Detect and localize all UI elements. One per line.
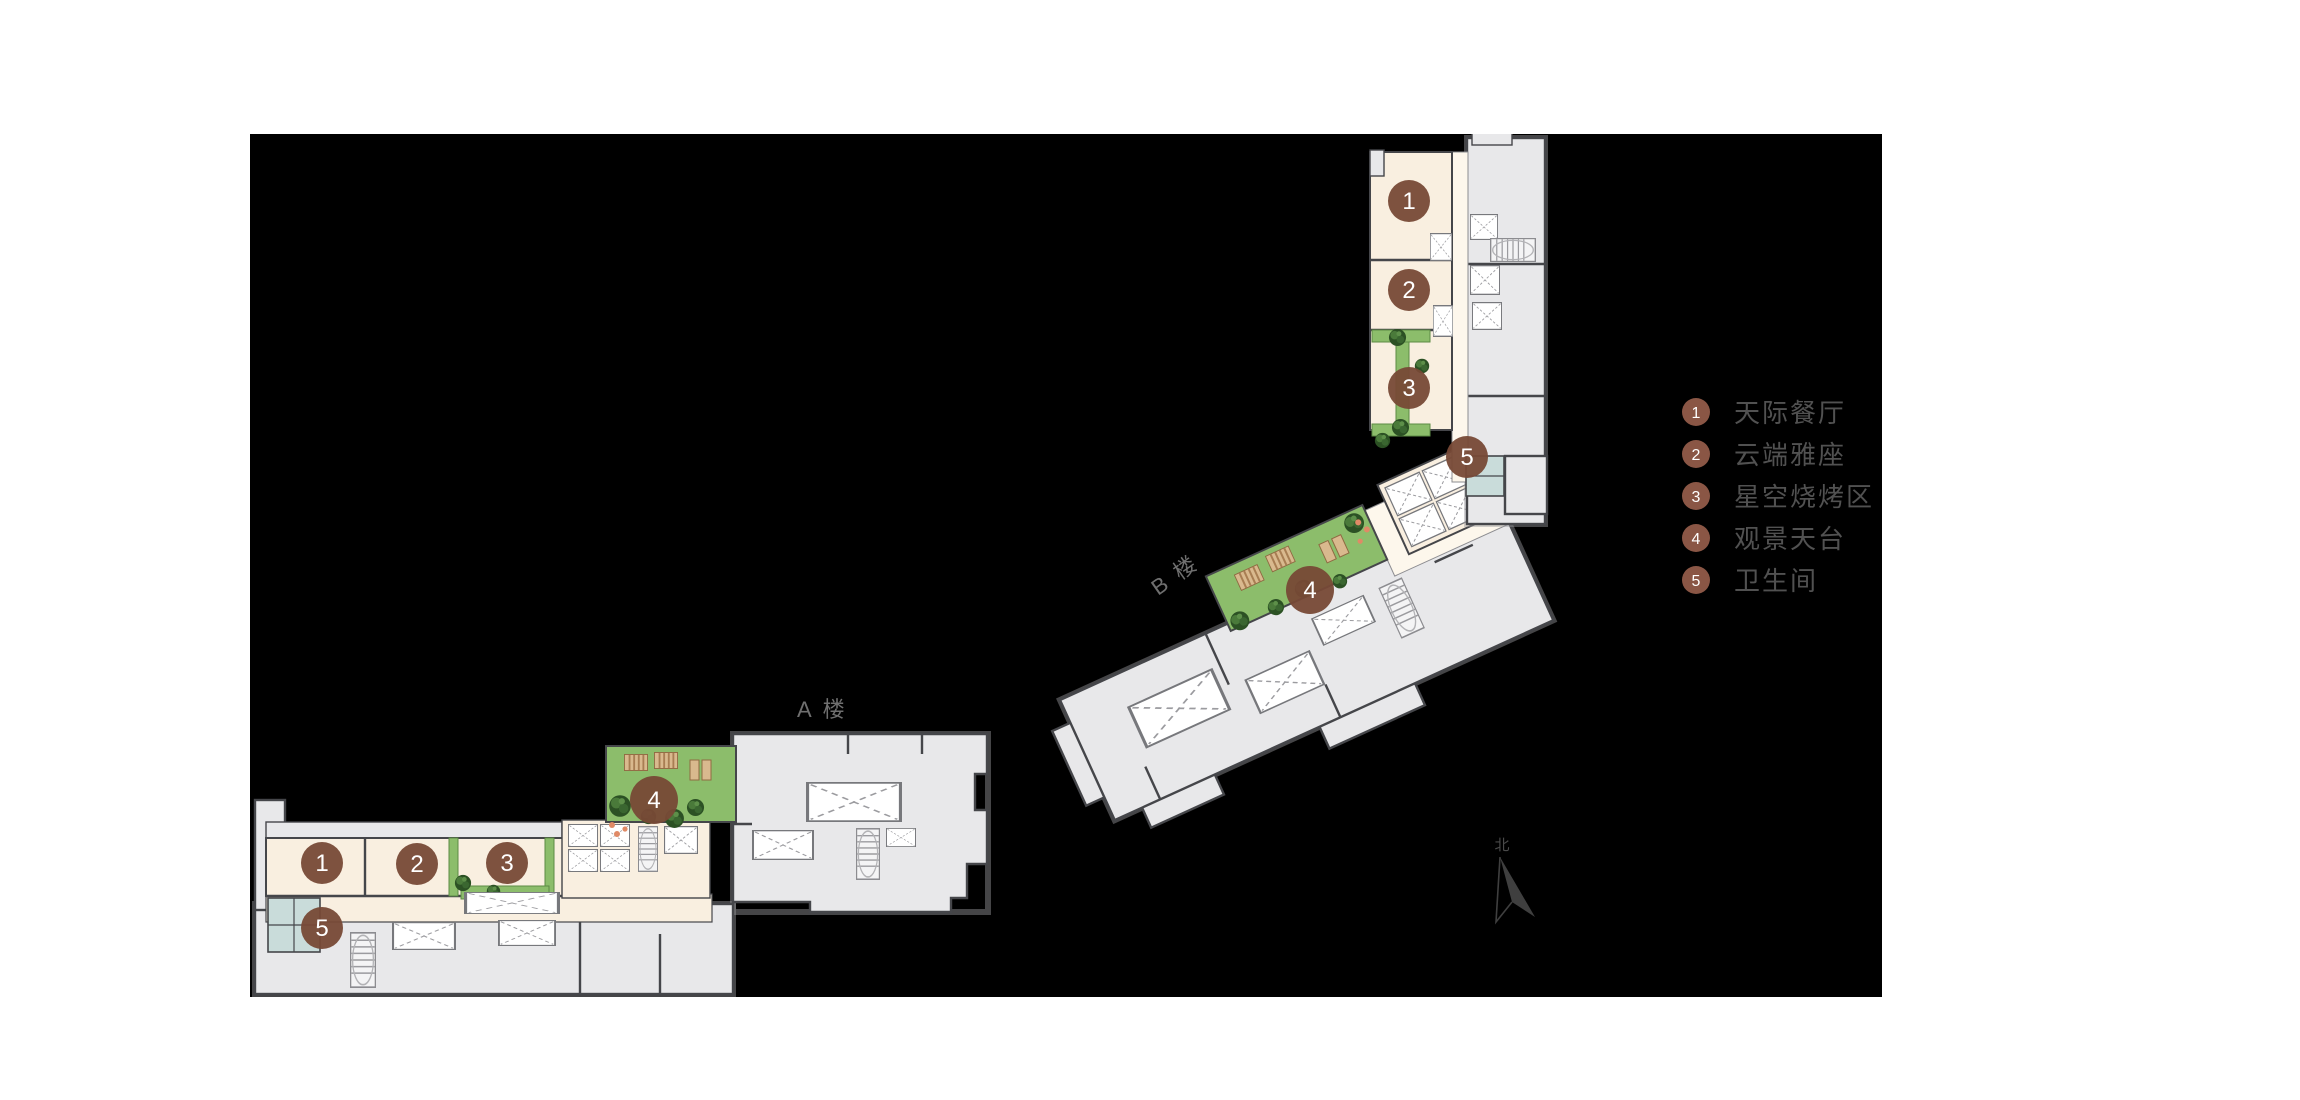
wing-b-notch [1370, 150, 1384, 176]
x-room [1470, 266, 1499, 295]
svg-text:5: 5 [1692, 573, 1701, 590]
legend-label-1: 天际餐厅 [1734, 398, 1846, 428]
elevator-x [665, 827, 698, 854]
x-room [1472, 303, 1501, 330]
tree-icon [1389, 329, 1406, 346]
lounge-chair [690, 760, 699, 780]
x-room [886, 828, 915, 846]
tree-icon [1375, 433, 1390, 448]
building-a [255, 734, 988, 994]
legend-item-3: 3 星空烧烤区 [1682, 482, 1874, 512]
x-room [393, 923, 455, 950]
x-room [499, 921, 555, 946]
tree-icon [455, 875, 471, 891]
stairs-icon [857, 829, 880, 879]
legend-label-3: 星空烧烤区 [1734, 482, 1874, 512]
svg-text:2: 2 [1692, 447, 1701, 464]
elevator-x [600, 849, 629, 871]
marker-a4: 4 [630, 776, 678, 824]
north-arrow-icon [1500, 857, 1535, 917]
stairs-icon [639, 827, 658, 872]
legend-label-2: 云端雅座 [1734, 440, 1846, 470]
svg-text:2: 2 [1402, 277, 1415, 304]
wing-b-corridor [1452, 152, 1468, 482]
accent-dot [609, 822, 615, 828]
tree-icon [1392, 419, 1409, 436]
floor-plan-page: 1 2 3 5 4 1 2 3 4 5 [0, 0, 2300, 1100]
north-label: 北 [1494, 837, 1509, 854]
x-room [807, 783, 900, 821]
svg-text:5: 5 [1460, 444, 1473, 471]
legend: 1 天际餐厅 2 云端雅座 3 星空烧烤区 4 观景天台 [1682, 398, 1874, 596]
legend-item-2: 2 云端雅座 [1682, 440, 1846, 470]
lounge-chair [654, 752, 677, 768]
svg-text:3: 3 [500, 850, 513, 877]
marker-b1: 1 [1388, 180, 1430, 222]
svg-text:4: 4 [1303, 577, 1316, 604]
marker-b2: 2 [1388, 269, 1430, 311]
elevator-x [568, 824, 597, 846]
x-room [1430, 234, 1451, 261]
marker-b5: 5 [1446, 436, 1488, 478]
legend-label-5: 卫生间 [1734, 566, 1818, 596]
svg-text:3: 3 [1402, 375, 1415, 402]
lounge-chair [624, 754, 647, 770]
elevator-x [568, 849, 597, 871]
x-room [1433, 306, 1452, 337]
svg-text:1: 1 [315, 850, 328, 877]
wing-b-top-step [1472, 134, 1512, 145]
legend-item-1: 1 天际餐厅 [1682, 398, 1846, 428]
marker-a3: 3 [486, 842, 528, 884]
floor-plan-svg: 1 2 3 5 4 1 2 3 4 5 [250, 134, 1882, 997]
svg-text:3: 3 [1692, 489, 1701, 506]
legend-item-5: 5 卫生间 [1682, 566, 1818, 596]
svg-text:1: 1 [1692, 405, 1701, 422]
legend-label-4: 观景天台 [1734, 524, 1846, 554]
building-a-main-mass [733, 734, 987, 912]
x-room [1470, 215, 1497, 240]
x-room [753, 831, 813, 860]
svg-text:5: 5 [315, 915, 328, 942]
tree-icon [609, 795, 631, 817]
accent-dot [622, 826, 627, 831]
stairs-icon [1491, 239, 1536, 262]
marker-a1: 1 [301, 842, 343, 884]
svg-text:4: 4 [1692, 531, 1701, 548]
svg-text:4: 4 [647, 787, 660, 814]
x-room [465, 892, 558, 913]
marker-b4: 4 [1286, 566, 1334, 614]
svg-text:2: 2 [410, 851, 423, 878]
accent-dot [614, 831, 620, 837]
marker-a5: 5 [301, 907, 343, 949]
lounge-chair [702, 760, 711, 780]
building-a-label: A 楼 [797, 697, 848, 722]
plan-canvas: 1 2 3 5 4 1 2 3 4 5 [250, 134, 1882, 997]
north-arrow: 北 [1494, 837, 1535, 922]
svg-text:1: 1 [1402, 188, 1415, 215]
stairs-icon [351, 933, 376, 987]
tree-icon [687, 799, 704, 816]
marker-a2: 2 [396, 843, 438, 885]
wing-b-gray-lower [1505, 456, 1547, 514]
legend-item-4: 4 观景天台 [1682, 524, 1846, 554]
building-b-label: B 楼 [1147, 550, 1204, 600]
marker-b3: 3 [1388, 367, 1430, 409]
